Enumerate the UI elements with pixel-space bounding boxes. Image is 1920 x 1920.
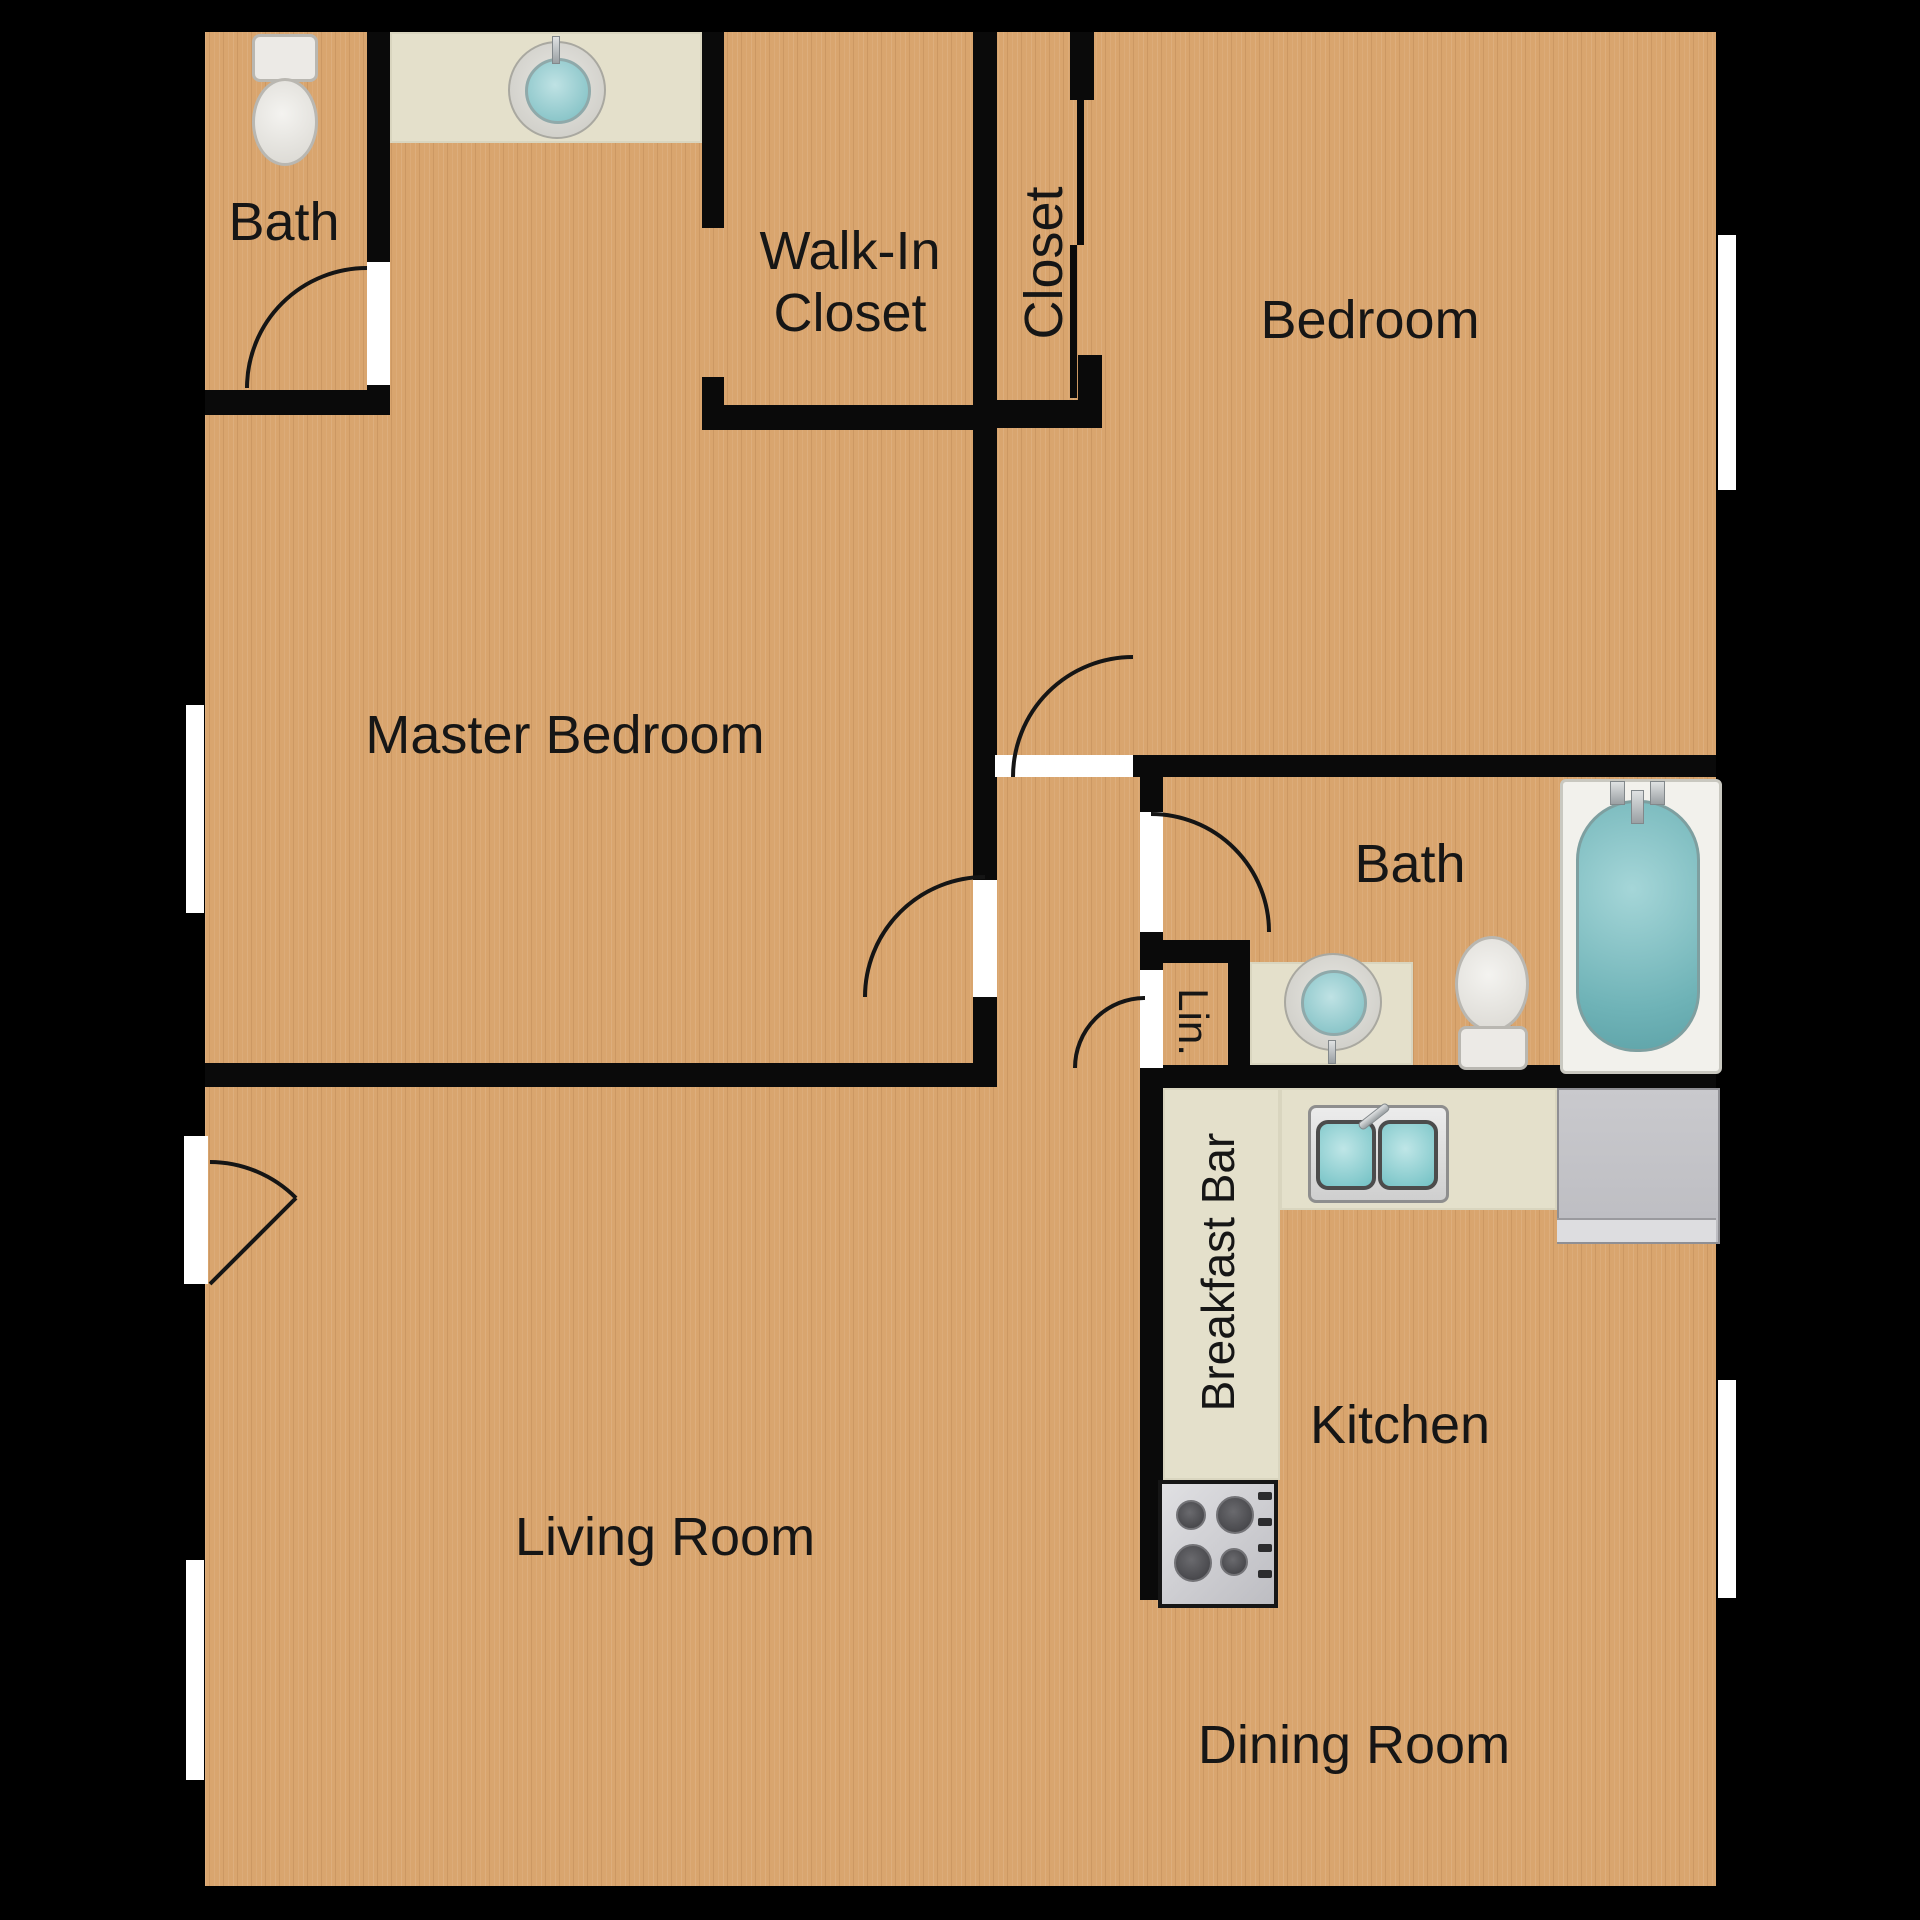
closet-sliding-door bbox=[1077, 100, 1084, 245]
refrigerator-handle bbox=[1557, 1218, 1716, 1242]
room-label-kitchen: Kitchen bbox=[1310, 1394, 1490, 1456]
stove-knob-icon bbox=[1258, 1570, 1272, 1578]
toilet-bowl-icon bbox=[1455, 936, 1529, 1032]
wall bbox=[702, 377, 724, 405]
stove-knob-icon bbox=[1258, 1492, 1272, 1500]
wall bbox=[1078, 355, 1102, 400]
wall bbox=[205, 390, 390, 415]
window-kitchen-right bbox=[1718, 1380, 1736, 1598]
room-label-walk-in-closet: Walk-In Closet bbox=[759, 220, 940, 344]
kitchen-sink-basin-icon bbox=[1378, 1120, 1438, 1190]
window-living-left bbox=[186, 1560, 204, 1780]
sink-bowl-icon bbox=[1301, 970, 1367, 1036]
room-label-living-room: Living Room bbox=[515, 1506, 815, 1568]
stove-knob-icon bbox=[1258, 1544, 1272, 1552]
tub-spout-icon bbox=[1631, 790, 1644, 824]
wall bbox=[973, 32, 997, 880]
stove-burner-icon bbox=[1174, 1544, 1212, 1582]
door-opening-master bbox=[973, 880, 997, 997]
bathtub-basin-icon bbox=[1576, 800, 1700, 1052]
toilet-bowl-icon bbox=[252, 78, 318, 166]
toilet-icon bbox=[1458, 1026, 1528, 1070]
door-opening-bath-main bbox=[1140, 812, 1163, 932]
faucet-icon bbox=[552, 36, 560, 64]
wall bbox=[702, 405, 997, 430]
stove-burner-icon bbox=[1216, 1496, 1254, 1534]
tub-faucet-icon bbox=[1610, 781, 1625, 805]
wall bbox=[1070, 32, 1094, 100]
window-master-left bbox=[186, 705, 204, 913]
room-label-bath-top: Bath bbox=[228, 191, 339, 253]
wall bbox=[205, 1063, 997, 1087]
room-label-bedroom: Bedroom bbox=[1260, 289, 1479, 351]
room-label-closet: Closet bbox=[1013, 186, 1075, 339]
wall bbox=[1133, 755, 1716, 777]
sink-bowl-icon bbox=[525, 58, 591, 124]
kitchen-sink-basin-icon bbox=[1316, 1120, 1376, 1190]
door-opening-entry bbox=[184, 1136, 208, 1284]
room-label-dining-room: Dining Room bbox=[1198, 1714, 1510, 1776]
wall bbox=[1140, 777, 1163, 812]
stove-burner-icon bbox=[1220, 1548, 1248, 1576]
faucet-icon bbox=[1328, 1040, 1336, 1064]
room-label-breakfast-bar: Breakfast Bar bbox=[1187, 1133, 1249, 1412]
stove-knob-icon bbox=[1258, 1518, 1272, 1526]
room-label-linen: Lin. bbox=[1162, 988, 1224, 1056]
door-opening-bath-top bbox=[367, 262, 390, 385]
toilet-icon bbox=[252, 34, 318, 82]
window-bedroom-right bbox=[1718, 235, 1736, 490]
door-opening-linen bbox=[1140, 970, 1163, 1068]
room-label-master-bedroom: Master Bedroom bbox=[365, 704, 764, 766]
stove-burner-icon bbox=[1176, 1500, 1206, 1530]
door-opening-bedroom bbox=[995, 755, 1133, 777]
wall bbox=[997, 400, 1102, 428]
floor-plan: Bath Walk-In Closet Closet Bedroom Maste… bbox=[0, 0, 1920, 1920]
room-label-bath-main: Bath bbox=[1354, 833, 1465, 895]
wall bbox=[702, 32, 724, 228]
tub-faucet-icon bbox=[1650, 781, 1665, 805]
wall bbox=[367, 32, 390, 262]
